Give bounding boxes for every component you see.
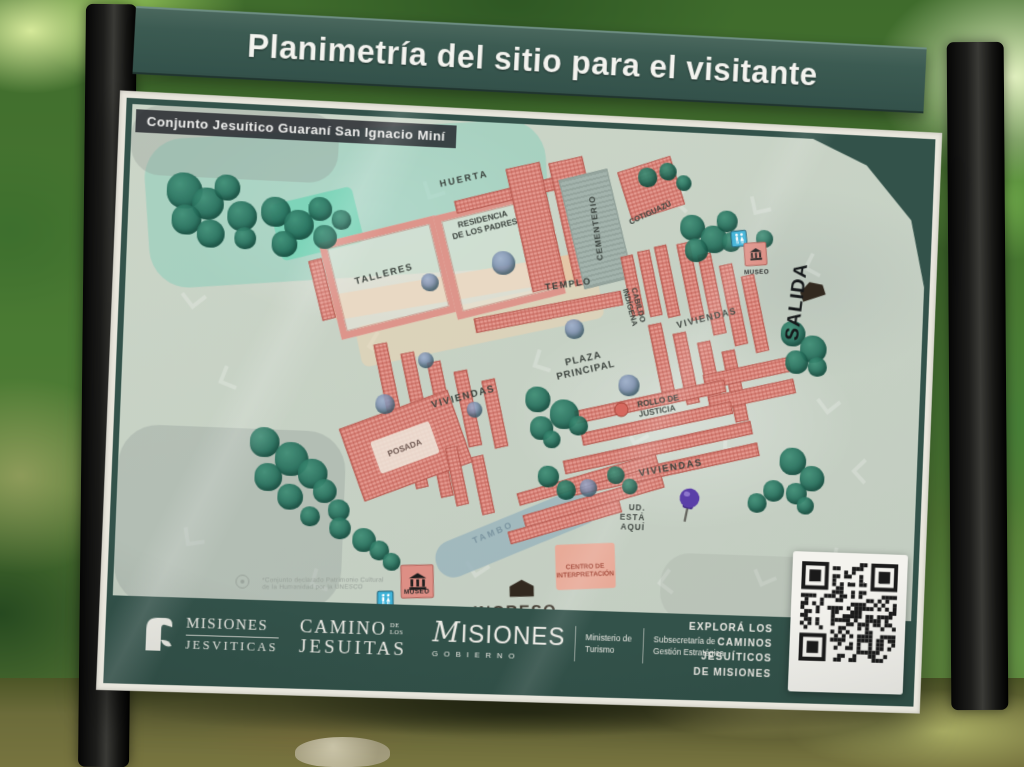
museum-icon: [743, 242, 767, 267]
map-label-cabildo-indigena: CABILDO INDÍGENA: [621, 285, 648, 327]
tree-icon: [467, 401, 483, 417]
gobierno-logo-m: M: [432, 618, 461, 649]
misiones-jesuiticas-line2: JESVITICAS: [185, 635, 278, 655]
building-block: [648, 323, 675, 397]
divider: [642, 628, 644, 663]
tree-icon: [329, 517, 351, 540]
watermark-chevron: [532, 349, 555, 372]
gobierno-logo-rest: ISIONES: [460, 620, 566, 651]
misiones-jesuiticas-logo: MISIONES JESVITICAS: [140, 612, 279, 656]
map-label-centro-de-interpretacion: CENTRO DE INTERPRETACIÓN: [556, 563, 614, 580]
map-label-salida: SALIDA: [782, 261, 813, 342]
map-label-museo-sur: MUSEO: [404, 588, 430, 596]
tree-icon: [747, 493, 767, 513]
map-label-unesco-note: *Conjunto declarado Patrimonio Cultural …: [262, 577, 384, 592]
sign-board: HUERTARESIDENCIA DE LOS PADRESTALLERESCE…: [96, 90, 942, 713]
watermark-chevron: [816, 389, 841, 415]
map-label-viviendas-ne: VIVIENDAS: [676, 307, 738, 332]
tree-icon: [785, 350, 809, 374]
stone: [295, 737, 390, 767]
building-block: [471, 455, 495, 516]
tree-icon: [543, 430, 561, 448]
camino-de-los-jesuitas-logo: CAMINO DE LOS JESUITAS: [299, 617, 408, 659]
tree-icon: [382, 553, 400, 571]
rollo-icon: [614, 402, 629, 417]
tree-icon: [565, 319, 585, 339]
unesco-icon: [235, 574, 249, 588]
sign-title: Planimetría del sitio para el visitante: [246, 27, 818, 94]
pushpin-icon: [669, 485, 706, 532]
arch-icon: [140, 612, 177, 653]
map-label-ud-esta-aqui: UD. ESTÁ AQUÍ: [619, 503, 646, 533]
gate-icon: [509, 579, 535, 603]
map-label-plaza-principal: PLAZA PRINCIPAL: [553, 347, 616, 382]
divider: [574, 626, 576, 661]
gobierno-word: GOBIERNO: [432, 649, 565, 662]
site-map: HUERTARESIDENCIA DE LOS PADRESTALLERESCE…: [113, 104, 930, 621]
explora-caption: EXPLORÁ LOS CAMINOS JESUÍTICOS DE MISION…: [687, 620, 773, 682]
tree-icon: [525, 386, 551, 413]
explora-line: EXPLORÁ LOS: [689, 620, 774, 638]
explora-line: DE MISIONES: [687, 664, 772, 681]
watermark-chevron: [851, 458, 876, 484]
ministerio-de-turismo: Ministerio de Turismo: [585, 633, 634, 656]
photo-of-site-map-sign: Planimetría del sitio para el visitante: [0, 0, 1024, 767]
sign-post-right: [947, 42, 1009, 710]
map-label-museo-ne: MUSEO: [744, 269, 769, 277]
tree-icon: [763, 480, 785, 502]
tree-icon: [676, 175, 692, 191]
watermark-chevron: [218, 365, 243, 390]
tree-icon: [618, 374, 640, 396]
tree-icon: [797, 497, 815, 515]
tree-icon: [716, 210, 738, 232]
de-los-words: DE LOS: [390, 620, 404, 637]
tree-icon: [808, 357, 828, 377]
jesuitas-word: JESUITAS: [299, 637, 408, 660]
sign-board-face: HUERTARESIDENCIA DE LOS PADRESTALLERESCE…: [103, 98, 935, 707]
watermark-chevron: [750, 193, 772, 215]
